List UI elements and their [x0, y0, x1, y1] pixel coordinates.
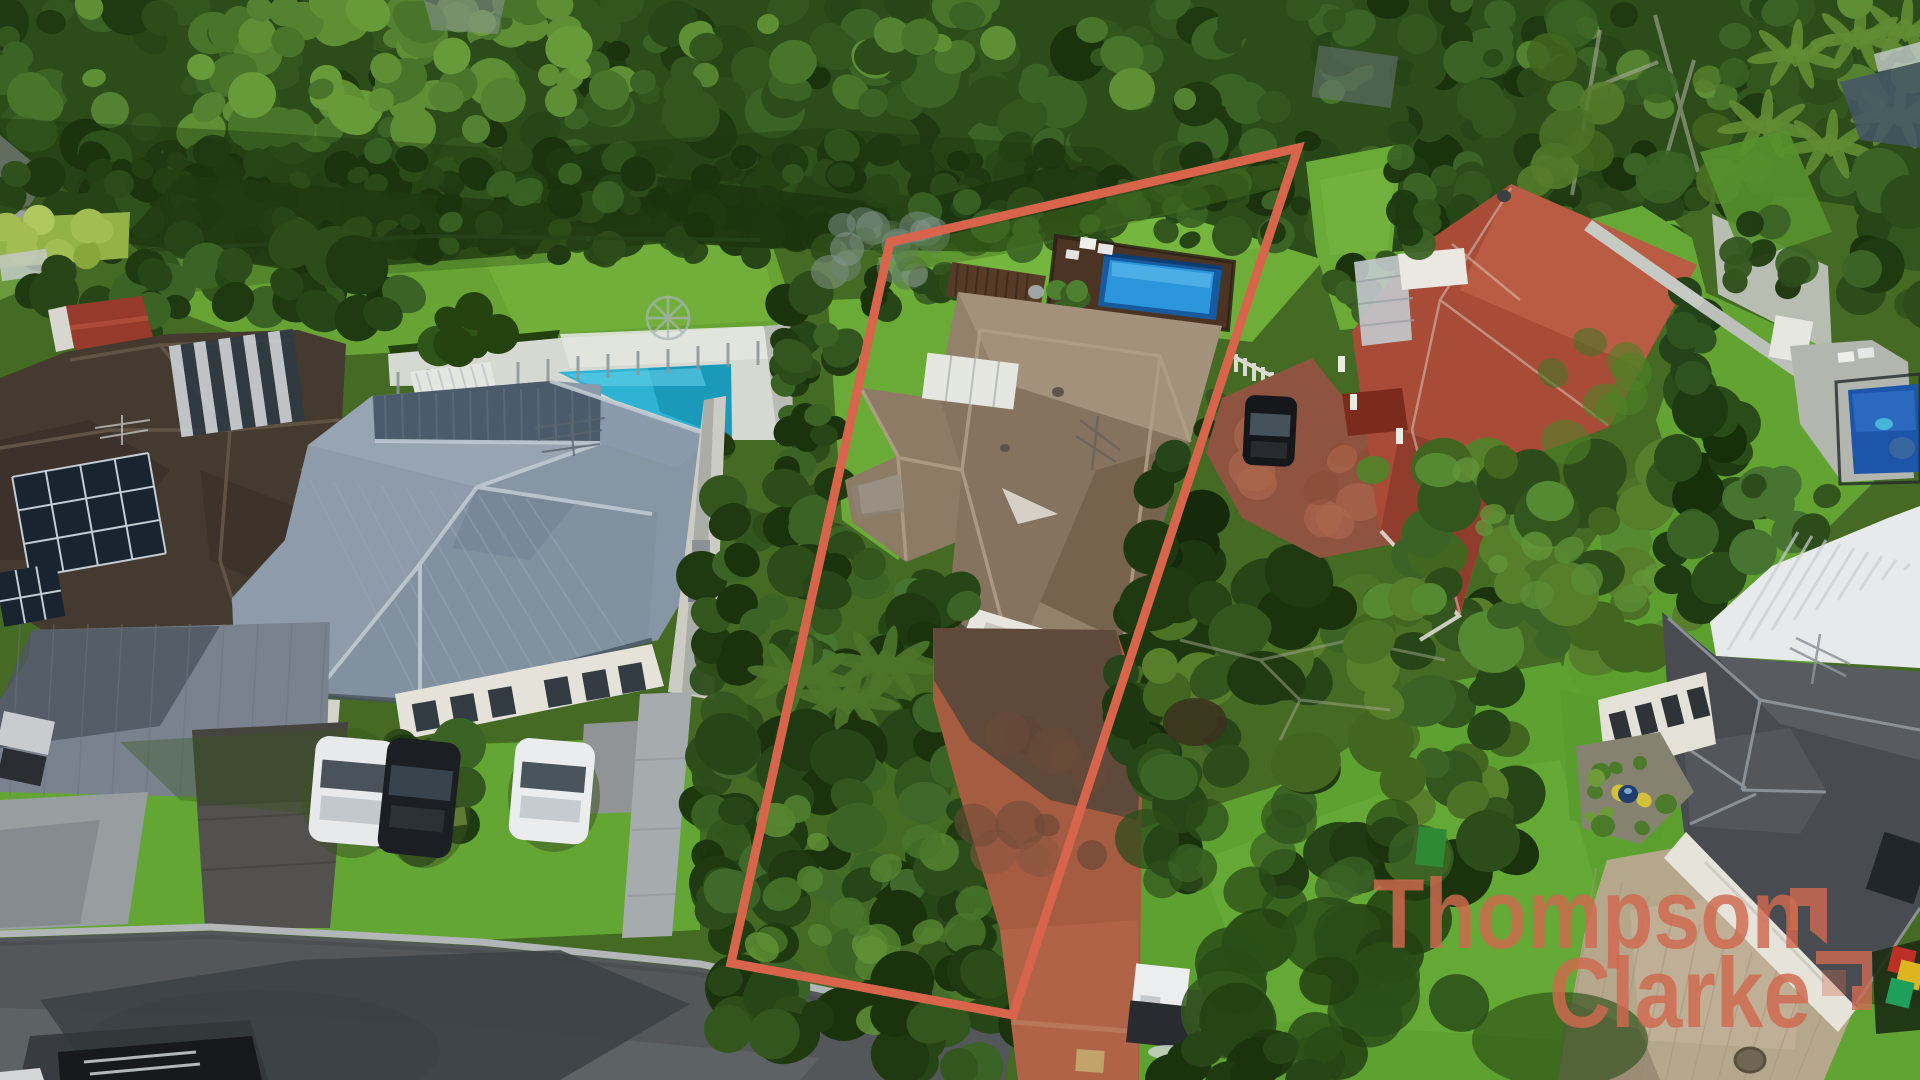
svg-text:Clarke: Clarke: [1549, 937, 1811, 1048]
